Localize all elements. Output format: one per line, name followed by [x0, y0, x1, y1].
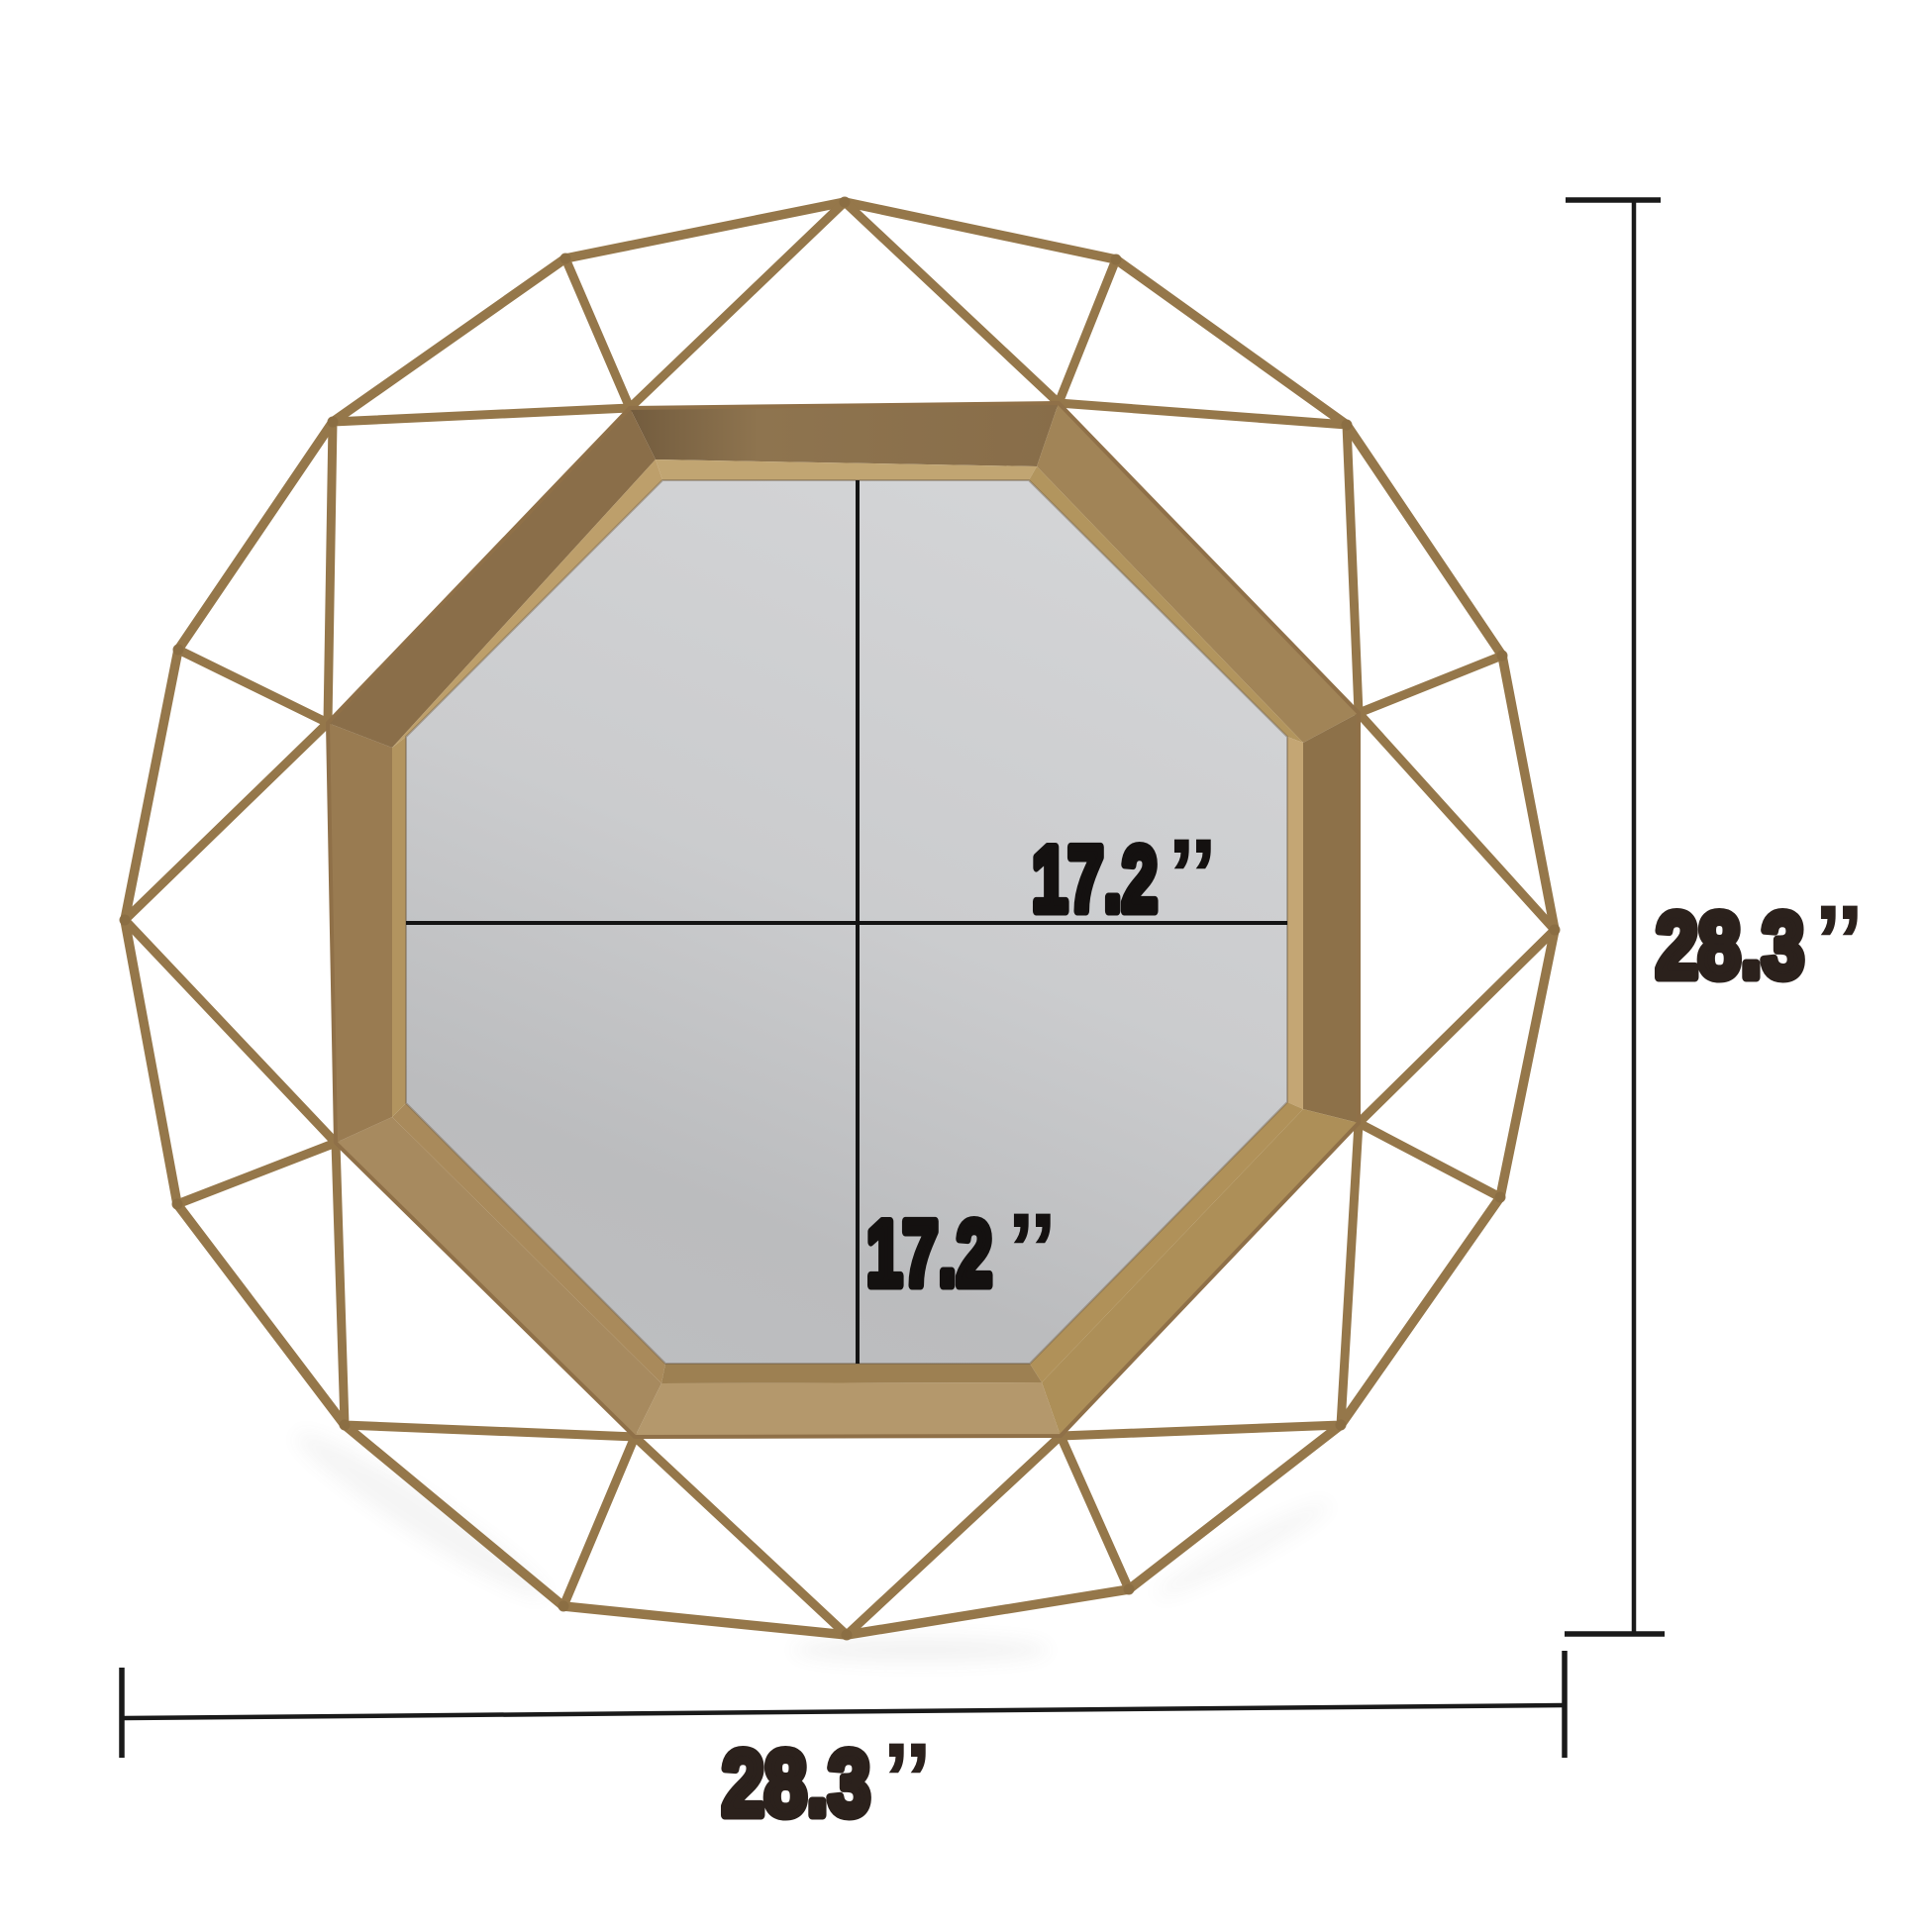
- svg-text:”: ”: [1006, 1192, 1059, 1308]
- svg-text:17.2: 17.2: [866, 1201, 992, 1305]
- svg-text:28.3: 28.3: [1656, 893, 1804, 997]
- svg-text:28.3: 28.3: [722, 1731, 870, 1835]
- svg-text:17.2: 17.2: [1032, 827, 1158, 931]
- svg-text:”: ”: [1166, 818, 1219, 934]
- svg-text:”: ”: [881, 1722, 934, 1838]
- svg-text:”: ”: [1813, 884, 1866, 1000]
